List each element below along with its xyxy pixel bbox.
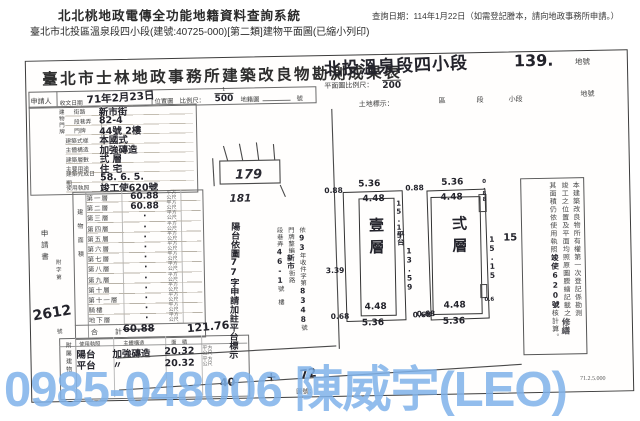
- plan2-dim-bottom-inner: 4.48: [443, 300, 465, 310]
- plan2-notch-bottom-dim: 0.6: [484, 297, 494, 303]
- contact-watermark: 0985-048006 陳威宇(LEO): [4, 350, 640, 421]
- plan2-notch-top-dim: 0.88: [481, 179, 487, 203]
- renumber-stamp-col1: 依93年收件字第8348號: [296, 226, 309, 338]
- plan2-floor-name: 弍層: [449, 215, 471, 259]
- plan2-right-dim: 15.15: [487, 235, 497, 280]
- renumber-stamp-col3: 段巷弄46-1號 樓: [273, 227, 286, 339]
- renumber-stamp: 依93年收件字第8348號 門牌整編新市街路 段巷弄46-1號 樓: [251, 226, 309, 339]
- renumber-stamp-col2: 門牌整編新市街路: [285, 227, 298, 339]
- plan2-dim-top-inner: 4.48: [440, 192, 462, 202]
- plans-between-top-dim: 0.88: [405, 183, 424, 192]
- sketch-lot-179-label: 179: [235, 167, 262, 183]
- plan1-dim-bottom-inner: 4.48: [364, 302, 386, 312]
- side-number-handwritten: 15: [503, 232, 517, 243]
- document-subtitle: 臺北市北投區溫泉段四小段(建號:40725-000)[第二類]建物平面圖(已縮小…: [30, 23, 369, 38]
- sketch-lot-181-label: 181: [229, 192, 251, 204]
- plan1-dim-side-left: 3.39: [326, 266, 345, 275]
- certification-stamp-box: 本建築改良物所有權第一次登記係勘測 竣工之位置及平面均照原圖謄繪記載之 其面積仍…: [520, 177, 587, 355]
- handwritten-note-vertical: 陽台依圖77字申請加註平台標示: [226, 222, 238, 370]
- plan1-mid-dim: 13.59: [404, 246, 414, 291]
- plan1-dim-top-inner: 4.48: [362, 194, 384, 204]
- plan1-dim-corner-bl: 0.68: [331, 312, 350, 321]
- plan1-terrace-label: 平台: [395, 231, 406, 246]
- plan1-floor-name: 壹層: [366, 217, 388, 261]
- plan2-dim-bottom-outer: 5.36: [443, 316, 465, 326]
- plan1-dim-top-outer: 5.36: [358, 179, 380, 189]
- plan2-dim-corner-bl: 0.68: [417, 309, 436, 318]
- plan1-dim-bottom-outer: 5.36: [362, 318, 384, 328]
- plan1-dim-corner-tl: 0.88: [324, 186, 343, 195]
- system-title: 北北桃地政電傳全功能地籍資料查詢系統: [58, 5, 301, 24]
- plan2-dim-top-outer: 5.36: [441, 177, 463, 187]
- query-date: 查詢日期：114年1月22日（如需登記謄本，請向地政事務所申請。）: [372, 10, 619, 22]
